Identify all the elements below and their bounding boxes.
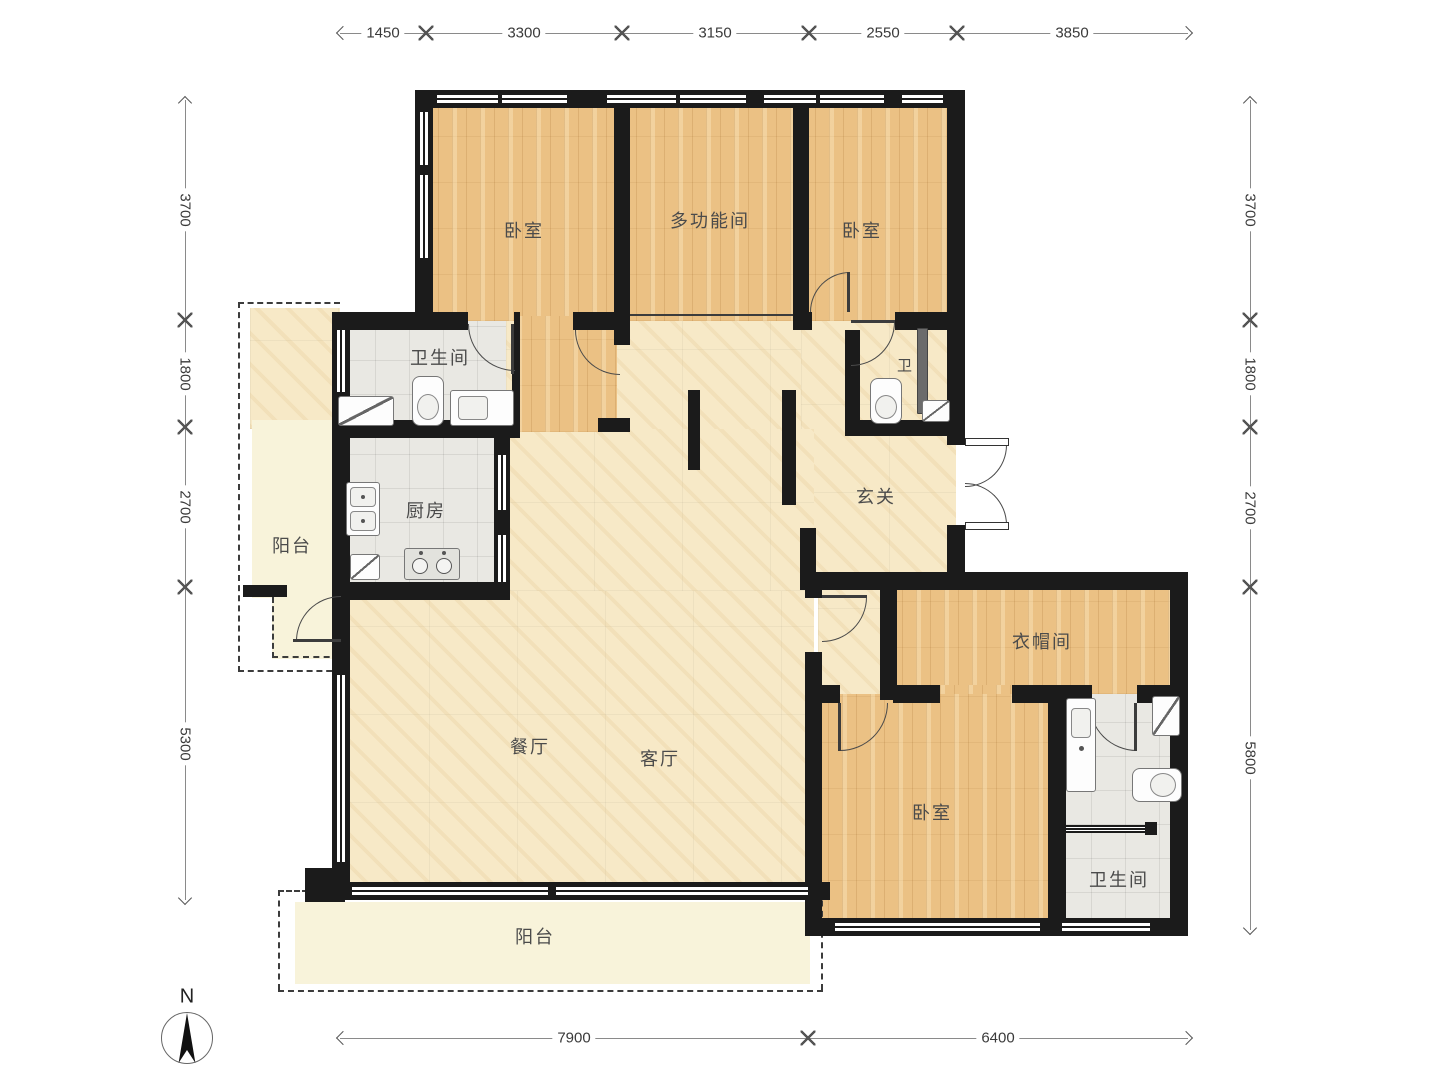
floor-entry-hall: [801, 321, 956, 581]
faucet-bathroom-master: [1079, 746, 1084, 751]
dim-line-bottom: [340, 1038, 1188, 1039]
wall-stub-hall: [688, 390, 700, 470]
wall-master-bath-divider: [1048, 694, 1066, 927]
dim-tick: [178, 580, 193, 595]
window-mullion: [816, 93, 820, 105]
door-leaf-vestibule: [822, 595, 867, 598]
balcony-left-dash-outline: [238, 302, 240, 672]
kitchen-sink-drain-a: [361, 495, 365, 499]
dim-arrow: [336, 26, 350, 40]
threshold-multi-room: [630, 314, 793, 316]
dim-tick: [178, 313, 193, 328]
wall-corner-chunk: [305, 868, 345, 902]
label-cloakroom: 衣帽间: [1012, 628, 1072, 654]
wall-partition1: [614, 99, 630, 345]
wall-band-seg: [573, 312, 618, 330]
window-kitchen-pass-b: [496, 535, 508, 582]
dim-right-3: 2700: [1242, 486, 1259, 529]
door-leaf-bathroom-master: [1134, 703, 1137, 751]
glass-post-master-bath: [1145, 822, 1157, 835]
wall-bath-small-bottom: [845, 420, 965, 436]
dim-left-4: 5300: [177, 722, 194, 765]
label-balcony-south: 阳台: [515, 923, 555, 949]
floor-plan: 卧室 多功能间 卧室 卫生间 卫 阳台 厨房 玄关 衣帽间 餐厅 客厅 卧室 卫…: [0, 0, 1440, 1080]
floor-balcony-left: [252, 420, 340, 598]
window-bedroom1-left-a: [418, 112, 430, 165]
dim-tick: [1243, 420, 1258, 435]
dim-tick: [615, 26, 630, 41]
entry-door-arc-lower: [965, 483, 1007, 525]
cabinet-bathroom-master: [1152, 696, 1180, 736]
wall-balcony-chunk-b: [335, 657, 350, 675]
stove-knob-left: [419, 551, 423, 555]
wall-mid-seg: [893, 685, 940, 703]
window-top-3: [764, 93, 884, 105]
wall-entry-left-lower: [800, 528, 816, 575]
balcony-south-dash-topleft: [278, 890, 308, 892]
label-entry-hall: 玄关: [856, 483, 896, 509]
balcony-south-dash-left: [278, 890, 280, 990]
label-bedroom-top-right: 卧室: [842, 217, 882, 243]
dim-right-2: 1800: [1242, 352, 1259, 395]
wall-bedroom-master-left: [805, 700, 822, 936]
floor-bedroom-top-left: [424, 99, 622, 321]
dim-top-4: 2550: [861, 25, 904, 42]
wall-vestibule-right: [880, 590, 897, 700]
label-multi-function: 多功能间: [670, 207, 750, 233]
dim-tick: [801, 1031, 816, 1046]
wall-cloakroom-top: [800, 572, 1188, 590]
dim-tick: [802, 26, 817, 41]
dim-top-2: 3300: [502, 25, 545, 42]
entry-door-panel-upper: [965, 438, 1009, 446]
window-mullion: [498, 93, 502, 105]
label-living-room: 客厅: [640, 745, 680, 771]
window-living-bottom-b: [556, 885, 808, 897]
entry-door-arc-upper: [965, 445, 1007, 487]
door-leaf-bathroom-main: [511, 324, 514, 374]
dim-right-1: 3700: [1242, 188, 1259, 231]
toilet-bowl-bathroom-main: [417, 394, 439, 420]
dim-top-3: 3150: [693, 25, 736, 42]
dim-arrow: [178, 96, 192, 110]
wall-mid-seg: [805, 685, 840, 703]
label-bathroom-small: 卫: [897, 355, 913, 376]
entry-door-panel-lower: [965, 522, 1009, 530]
label-kitchen: 厨房: [406, 497, 446, 523]
dim-bottom-2: 6400: [976, 1030, 1019, 1047]
wall-stub-corridor: [598, 418, 630, 432]
dim-left-1: 3700: [177, 188, 194, 231]
wall-top-right: [947, 90, 965, 330]
dim-top-1: 1450: [361, 25, 404, 42]
balcony-left-dash-inner-h: [272, 656, 340, 658]
dim-tick: [1243, 313, 1258, 328]
window-bedroom-master: [835, 921, 1040, 933]
label-dining-room: 餐厅: [510, 733, 550, 759]
wall-vestibule-left-a: [805, 590, 822, 598]
label-bedroom-top-left: 卧室: [504, 217, 544, 243]
wall-band-seg: [332, 312, 468, 330]
door-leaf-balcony-left: [293, 639, 341, 642]
wall-entry-left: [782, 390, 796, 505]
shower-bathroom-small: [922, 400, 950, 422]
washer-bathroom-main: [338, 396, 394, 426]
balcony-left-dash-top: [238, 302, 340, 304]
label-bedroom-master: 卧室: [912, 799, 952, 825]
stove-knob-right: [442, 551, 446, 555]
stove-burner-left: [412, 558, 428, 574]
glass-screen-master-bath: [1066, 825, 1145, 833]
label-bathroom-main: 卫生间: [410, 344, 470, 370]
window-bathroom-master: [1062, 921, 1150, 933]
floor-mid-hall: [506, 429, 814, 591]
dim-arrow: [1243, 921, 1257, 935]
wall-right-upper-b: [947, 525, 965, 590]
window-kitchen-pass-a: [496, 455, 508, 510]
dim-arrow: [1179, 26, 1193, 40]
sink-bathroom-master: [1071, 708, 1091, 738]
floor-balcony-left-upper: [250, 308, 340, 429]
door-leaf-bedroom-top-right: [847, 272, 850, 312]
balcony-south-dash-bottom: [278, 990, 823, 992]
balcony-left-dash-inner: [272, 597, 274, 658]
window-bathroom-main: [335, 330, 347, 392]
balcony-left-dash-bottom: [238, 670, 342, 672]
dim-arrow: [336, 1031, 350, 1045]
dim-left-3: 2700: [177, 485, 194, 528]
window-mullion: [676, 93, 680, 105]
wall-right-lower: [1170, 572, 1188, 936]
dim-tick: [419, 26, 434, 41]
compass-north-label: N: [180, 986, 194, 1009]
door-leaf-bedroom-master: [838, 703, 841, 751]
sink-bathroom-main: [458, 396, 488, 420]
window-bedroom1-left-b: [418, 175, 430, 258]
wall-band-seg: [793, 312, 812, 330]
dim-left-2: 1800: [177, 352, 194, 395]
label-bathroom-master: 卫生间: [1089, 866, 1149, 892]
dim-tick: [1243, 580, 1258, 595]
dim-tick: [178, 420, 193, 435]
dim-right-4: 5800: [1242, 736, 1259, 779]
window-top-4: [902, 93, 943, 105]
dim-tick: [950, 26, 965, 41]
kitchen-corner-cabinet: [350, 554, 380, 580]
wall-band-seg: [895, 312, 965, 330]
dim-bottom-1: 7900: [552, 1030, 595, 1047]
door-leaf-bathroom-small: [851, 320, 895, 323]
toilet-bowl-bathroom-master: [1150, 773, 1176, 797]
wall-balcony-chunk-a: [243, 585, 287, 597]
kitchen-sink-drain-b: [361, 519, 365, 523]
wall-kitchen-bottom: [332, 582, 510, 600]
toilet-bowl-bathroom-small: [875, 395, 897, 419]
dim-arrow: [1243, 96, 1257, 110]
label-balcony-left: 阳台: [272, 532, 312, 558]
window-top-1: [437, 93, 567, 105]
dim-arrow: [1179, 1031, 1193, 1045]
wall-partition2: [793, 99, 809, 330]
window-living-left: [335, 675, 347, 862]
dim-top-5: 3850: [1050, 25, 1093, 42]
window-living-bottom-a: [352, 885, 548, 897]
dim-arrow: [178, 891, 192, 905]
floor-living-dining: [341, 591, 814, 891]
stove-burner-right: [436, 558, 452, 574]
